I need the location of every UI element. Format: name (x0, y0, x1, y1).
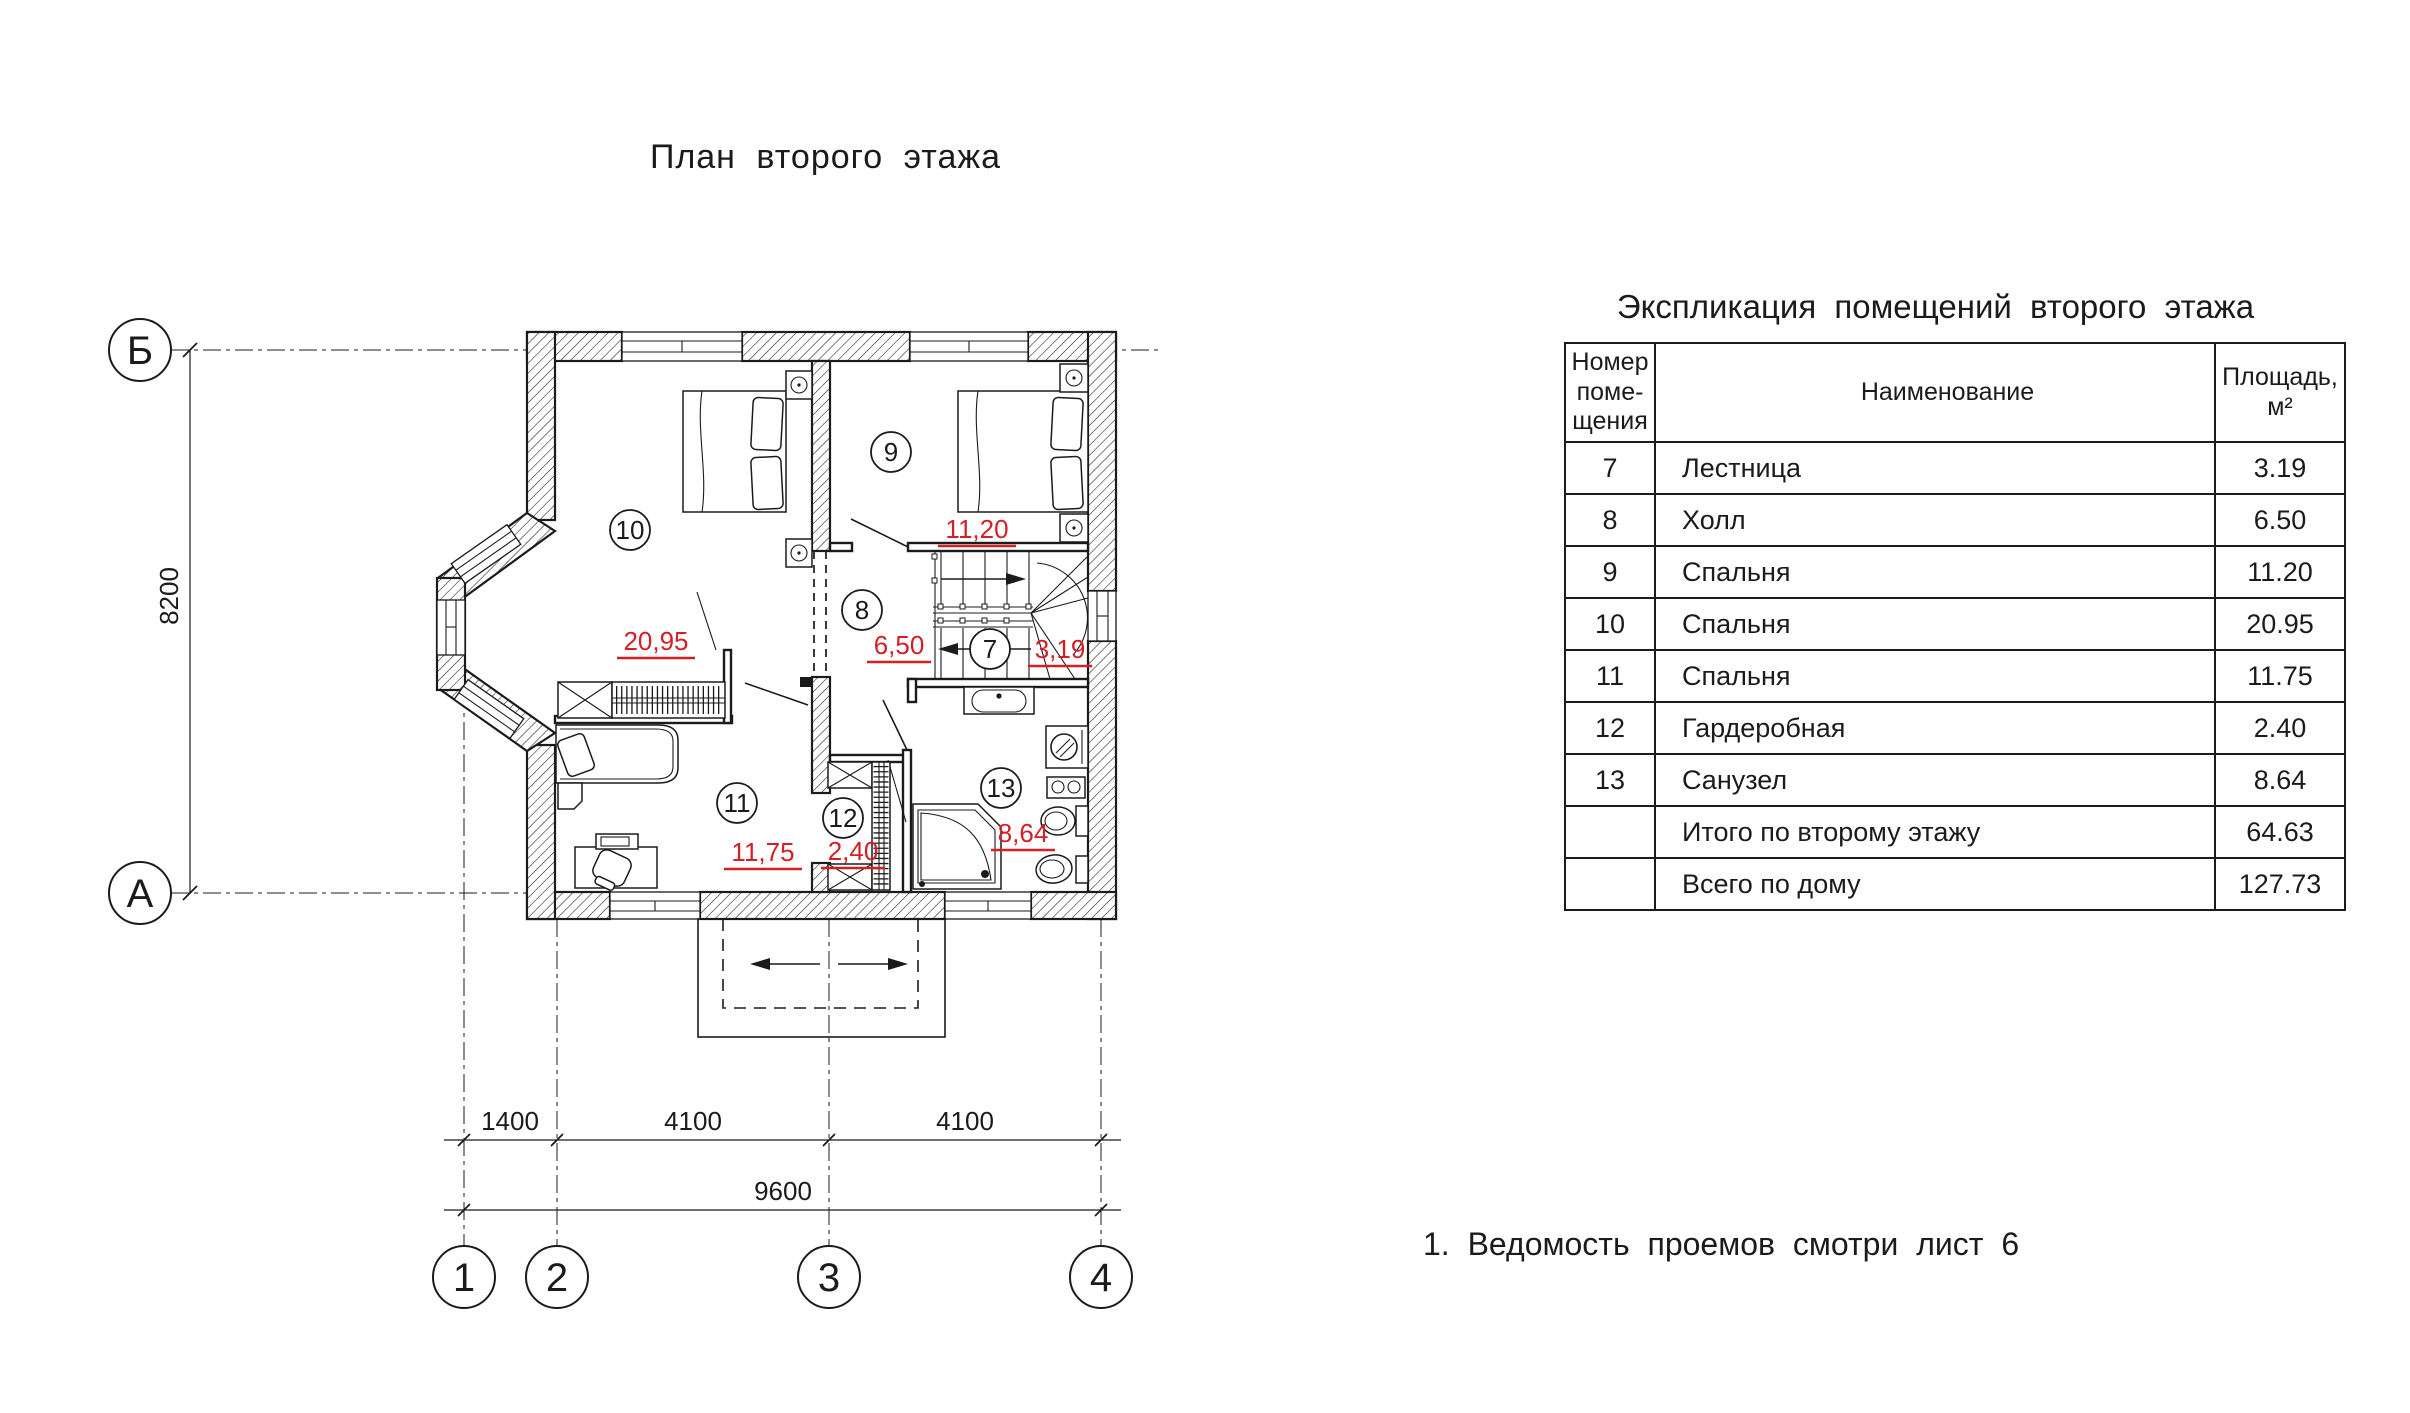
opening-dashed-lines (814, 551, 826, 677)
leader-line (697, 592, 716, 650)
bay-window-front (437, 600, 465, 655)
dim-9600: 9600 (754, 1176, 812, 1206)
window-top-left (622, 332, 742, 361)
room-10-number: 10 (616, 515, 645, 545)
area-room-7: 3,19 (1035, 634, 1086, 664)
room-8-number: 8 (855, 595, 869, 625)
dim-4100-a: 4100 (664, 1106, 722, 1136)
axis-col-4: 4 (1090, 1256, 1112, 1300)
dim-1400: 1400 (481, 1106, 539, 1136)
axis-row-a: А (127, 872, 154, 916)
area-room-9: 11,20 (945, 514, 1008, 544)
bed-room-9 (958, 391, 1088, 512)
area-room-11: 11,75 (731, 837, 794, 867)
wardrobe-room-10 (558, 682, 725, 718)
area-room-8: 6,50 (874, 630, 925, 660)
room-11-number: 11 (724, 788, 751, 818)
area-room-13: 8,64 (998, 818, 1049, 848)
nightstands-room-10 (786, 371, 812, 567)
window-bottom-left (610, 892, 700, 919)
room-12-number: 12 (829, 803, 858, 833)
desk-room-11 (575, 834, 657, 894)
axis-row-b: Б (127, 329, 153, 373)
sink-cabinet (1047, 777, 1085, 798)
room-13-number: 13 (987, 773, 1016, 803)
door-room-11 (745, 683, 808, 705)
axis-col-2: 2 (546, 1256, 568, 1300)
bed-room-11 (556, 725, 678, 809)
bed-room-10 (683, 391, 786, 512)
corner-bathtub (913, 804, 1001, 889)
window-right (1088, 591, 1116, 641)
floor-plan-drawing: 8200 1400 4100 4100 9600 Б А 1 2 3 4 10 … (0, 0, 2410, 1413)
axis-col-1: 1 (453, 1256, 475, 1300)
washing-machine (1046, 726, 1088, 768)
bidet (1034, 853, 1088, 886)
washbasin (964, 687, 1034, 714)
door-bathroom (883, 700, 907, 750)
area-room-12: 2,40 (828, 836, 879, 866)
dim-vertical-8200: 8200 (154, 567, 184, 625)
balcony-outline (698, 919, 945, 1037)
window-top-right (910, 332, 1028, 361)
dim-4100-b: 4100 (936, 1106, 994, 1136)
axis-col-3: 3 (818, 1256, 840, 1300)
room-9-number: 9 (884, 437, 898, 467)
window-bottom-right (945, 892, 1031, 919)
area-room-10: 20,95 (623, 626, 688, 656)
door-room-9 (851, 519, 908, 547)
room-7-number: 7 (983, 634, 997, 664)
